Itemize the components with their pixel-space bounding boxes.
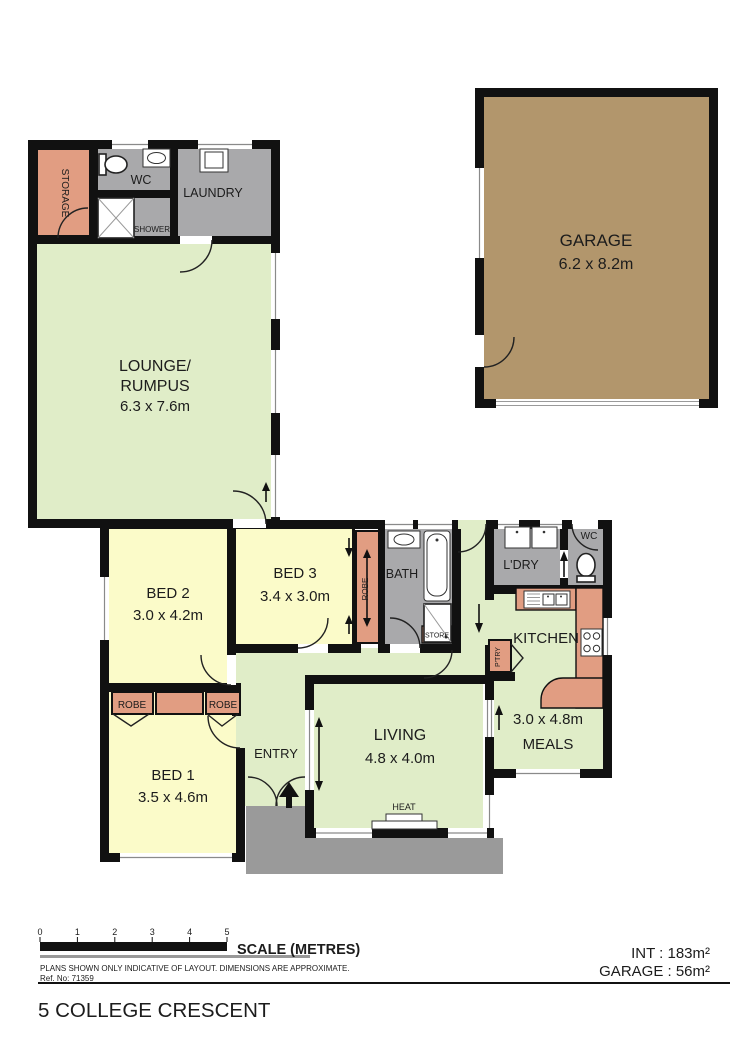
robe2-label: ROBE xyxy=(209,700,238,711)
bed1-dims: 3.5 x 4.6m xyxy=(138,789,208,806)
bed3-dims: 3.4 x 3.0m xyxy=(260,588,330,605)
kitchen-counter-bottom xyxy=(541,678,603,708)
utility-window-2 xyxy=(198,140,252,149)
entry-label: ENTRY xyxy=(254,746,298,761)
living-bottom-window-1 xyxy=(316,828,372,838)
scale-tick-3: 3 xyxy=(150,927,155,937)
garage-dims: 6.2 x 8.2m xyxy=(559,256,634,273)
kitchen-label: KITCHEN xyxy=(513,630,579,647)
bath-door-gap xyxy=(390,644,420,653)
wall-upper-left xyxy=(28,140,37,528)
robe-mid-box xyxy=(156,692,203,714)
laundry-label: LAUNDRY xyxy=(183,186,243,200)
wall-garage-right xyxy=(709,88,718,408)
kitchen-window xyxy=(603,618,612,655)
lounge-label-2: RUMPUS xyxy=(120,378,189,395)
laundry-trough xyxy=(200,149,228,172)
wall-pantry-bottom xyxy=(485,672,515,681)
floor-plan-page: GARAGE 6.2 x 8.2m LOUNGE/ RUMPUS 6.3 x 7… xyxy=(0,0,750,1061)
int-area-text: INT : 183m² xyxy=(631,945,710,962)
scale-tick-0: 0 xyxy=(37,927,42,937)
garage-label: GARAGE xyxy=(560,231,633,250)
wc2-label: WC xyxy=(581,531,598,542)
utility-window-1 xyxy=(112,140,148,149)
wall-utility-bottom xyxy=(33,236,271,244)
lounge-window-3 xyxy=(271,455,280,517)
scale-tick-5: 5 xyxy=(224,927,229,937)
bath-basin xyxy=(388,531,420,548)
meals-dims: 3.0 x 4.8m xyxy=(513,711,583,728)
wall-bed1-right xyxy=(236,748,245,862)
room-bed1 xyxy=(109,716,236,853)
bed2-door-gap xyxy=(227,655,236,685)
lounge-label-1: LOUNGE/ xyxy=(119,358,192,375)
wall-living-top xyxy=(305,675,494,684)
meals-label: MEALS xyxy=(523,736,574,753)
robe3-label: ROBE xyxy=(361,578,370,601)
bath-window-2 xyxy=(418,520,452,529)
lounge-door-gap xyxy=(233,519,266,528)
living-label: LIVING xyxy=(374,727,426,744)
living-bottom-window-2 xyxy=(448,828,487,838)
meals-window xyxy=(516,769,580,778)
scale-bar-solid xyxy=(40,942,227,951)
toilet-wc1 xyxy=(99,154,127,175)
floor-plan-canvas: GARAGE 6.2 x 8.2m LOUNGE/ RUMPUS 6.3 x 7… xyxy=(0,0,750,1061)
scale-tick-4: 4 xyxy=(187,927,192,937)
wall-bath-right xyxy=(452,520,461,653)
garage-roller-door xyxy=(496,399,699,408)
page-title: 5 COLLEGE CRESCENT xyxy=(38,999,271,1022)
room-bed3 xyxy=(236,529,353,644)
garage-area-text: GARAGE : 56m² xyxy=(599,963,710,980)
living-dims: 4.8 x 4.0m xyxy=(365,750,435,767)
garage-door-gap xyxy=(475,335,484,367)
scale-tick-2: 2 xyxy=(112,927,117,937)
shower-stall xyxy=(98,198,134,238)
kitchen-walkway-gap xyxy=(485,600,494,645)
wall-lower-left xyxy=(100,520,109,862)
kitchen-sink xyxy=(524,591,570,608)
bed2-window xyxy=(100,577,109,640)
bed2-label: BED 2 xyxy=(146,585,189,602)
wc1-label: WC xyxy=(131,173,152,187)
meals-living-opening xyxy=(485,700,494,737)
wall-garage-top xyxy=(475,88,718,97)
ref-number: Ref. No: 71359 xyxy=(40,974,94,983)
room-entry xyxy=(236,648,305,806)
wc2-door-gap xyxy=(572,520,598,529)
disclaimer-text: PLANS SHOWN ONLY INDICATIVE OF LAYOUT. D… xyxy=(40,964,350,973)
ldry-label: L'DRY xyxy=(503,558,539,572)
heat-label: HEAT xyxy=(392,802,416,812)
lounge-dims: 6.3 x 7.6m xyxy=(120,398,190,415)
bathtub xyxy=(424,531,450,601)
living-right-window xyxy=(485,795,494,828)
bed3-door-gap xyxy=(298,644,328,653)
wall-bed2-bed3 xyxy=(227,529,236,655)
storage-label: STORAGE xyxy=(59,169,70,218)
bed1-label: BED 1 xyxy=(151,767,194,784)
stove xyxy=(581,629,602,656)
lounge-window-2 xyxy=(271,350,280,413)
toilet-wc2 xyxy=(577,554,595,583)
footer-rule xyxy=(38,982,730,984)
wall-wc1-right xyxy=(170,145,178,238)
hall-door-gap xyxy=(458,520,486,529)
scale-tick-1: 1 xyxy=(75,927,80,937)
scale-label: SCALE (METRES) xyxy=(237,942,360,958)
bath-window-1 xyxy=(385,520,413,529)
shower-label: SHOWER xyxy=(134,225,170,234)
bath-label: BATH xyxy=(386,567,418,581)
bed3-label: BED 3 xyxy=(273,565,316,582)
bed1-window xyxy=(120,853,232,862)
wall-storage-right xyxy=(90,145,98,240)
pantry-label: P'TRY xyxy=(495,647,502,667)
wall-robe-top xyxy=(109,683,241,692)
garage-window xyxy=(475,168,484,258)
basin-wc1 xyxy=(143,149,170,167)
lounge-window-1 xyxy=(271,253,280,319)
wall-robe3-track xyxy=(352,529,355,647)
laundry-door-gap xyxy=(180,236,212,244)
wall-wc1-bottom xyxy=(98,190,170,198)
robe1-label: ROBE xyxy=(118,700,147,711)
living-left-window xyxy=(305,710,314,790)
store-label: STORE xyxy=(425,633,449,640)
room-bed2 xyxy=(109,529,227,683)
bed2-dims: 3.0 x 4.2m xyxy=(133,607,203,624)
